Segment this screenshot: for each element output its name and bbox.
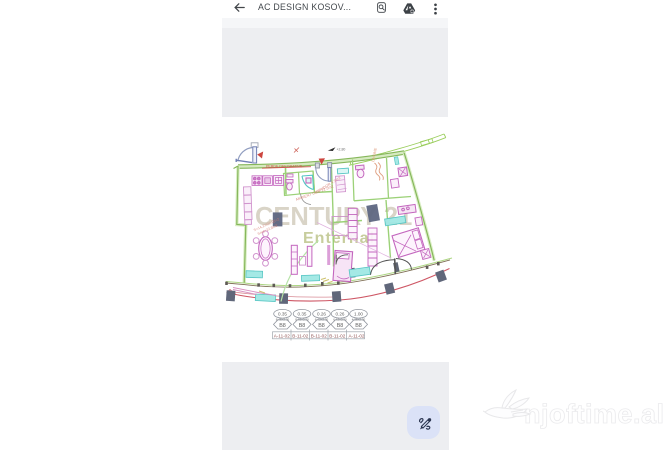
svg-text:B8: B8 (337, 323, 344, 329)
svg-text:B8: B8 (299, 323, 306, 329)
svg-text:PERDE DEKORATIVE: PERDE DEKORATIVE (266, 165, 303, 169)
svg-text:B-11-02: B-11-02 (329, 333, 345, 338)
svg-text:B8: B8 (279, 323, 286, 329)
svg-text:B-11-02: B-11-02 (311, 333, 327, 338)
svg-text:1.00: 1.00 (354, 312, 363, 317)
svg-text:0.35: 0.35 (298, 312, 307, 317)
svg-text:B-11-02: B-11-02 (292, 333, 308, 338)
svg-text:B8: B8 (355, 323, 362, 329)
svg-text:0.26: 0.26 (336, 312, 345, 317)
svg-text:+2,80: +2,80 (337, 148, 346, 152)
svg-text:0.26: 0.26 (317, 312, 326, 317)
svg-text:A-11-02: A-11-02 (274, 333, 290, 338)
svg-text:B8: B8 (318, 323, 325, 329)
svg-text:A-11-02: A-11-02 (348, 333, 364, 338)
svg-text:0.35: 0.35 (278, 312, 287, 317)
